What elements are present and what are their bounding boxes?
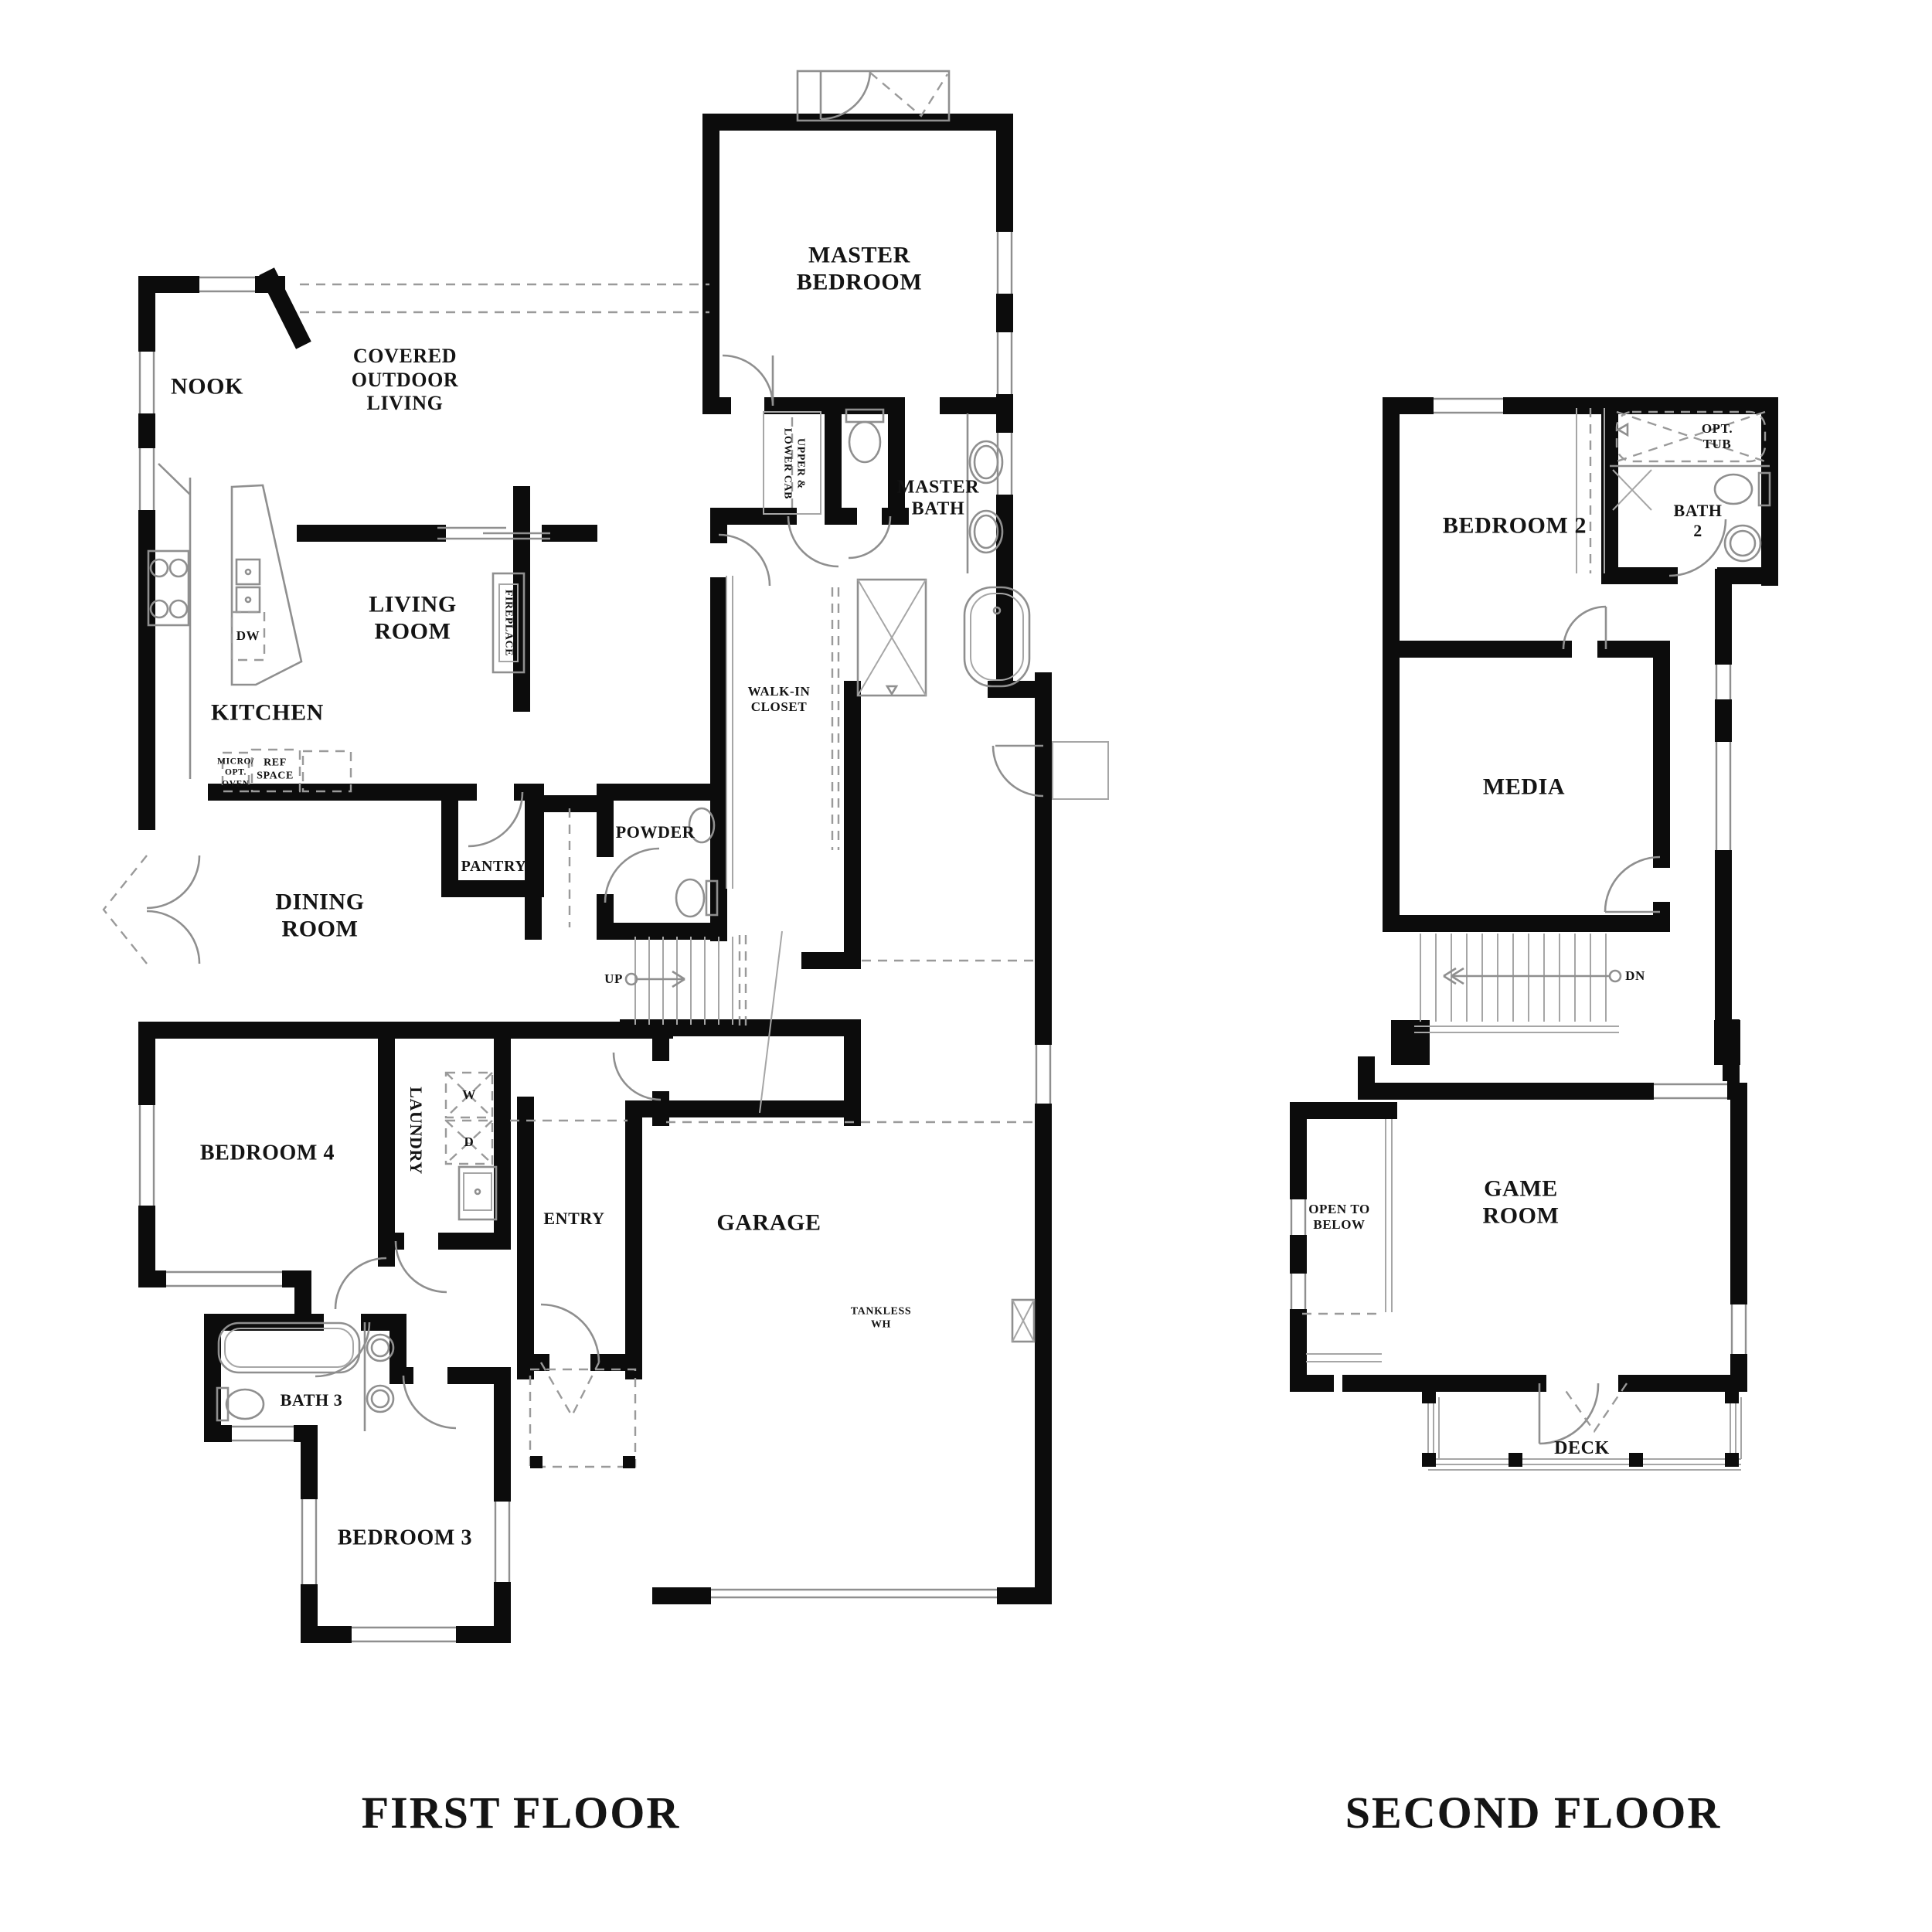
- porch-outline: [530, 1369, 635, 1467]
- label-covered-outdoor-living: COVERED OUTDOOR LIVING: [352, 345, 459, 416]
- label-garage: GARAGE: [716, 1209, 821, 1236]
- label-dining-room: DINING ROOM: [275, 889, 364, 944]
- label-living-room: LIVING ROOM: [369, 591, 457, 646]
- label-master-bath: MASTER BATH: [897, 477, 979, 521]
- bath2-toilet-icon: [1715, 474, 1752, 504]
- stairs-down-icon: [1414, 934, 1621, 1032]
- shower-icon: [1613, 470, 1651, 510]
- label-game-room: GAME ROOM: [1482, 1175, 1559, 1230]
- kitchen-sink-icon: [236, 560, 260, 584]
- label-fireplace: FIREPLACE: [502, 590, 515, 656]
- label-dw: DW: [236, 628, 260, 644]
- label-ref-space: REF SPACE: [257, 757, 294, 782]
- label-deck: DECK: [1554, 1437, 1610, 1459]
- label-dn: DN: [1625, 968, 1645, 984]
- railing-icon: [1386, 1119, 1392, 1312]
- label-washer: W: [462, 1087, 476, 1103]
- second-floor-title: SECOND FLOOR: [1345, 1787, 1721, 1839]
- label-entry: ENTRY: [543, 1209, 604, 1229]
- label-media: MEDIA: [1483, 773, 1565, 800]
- label-tankless-wh: TANKLESS WH: [851, 1305, 911, 1331]
- label-micro-opt-oven: MICRO/ OPT. OVEN: [217, 756, 254, 789]
- label-bath-2: BATH 2: [1673, 501, 1722, 541]
- bath3-toilet-icon: [226, 1389, 264, 1419]
- label-open-to-below: OPEN TO BELOW: [1308, 1202, 1370, 1233]
- label-up: UP: [604, 971, 623, 987]
- label-nook: NOOK: [171, 372, 243, 400]
- second-floor-walls: [1298, 406, 1770, 1383]
- first-floor-title: FIRST FLOOR: [362, 1787, 681, 1839]
- first-floor-plan: [104, 71, 1108, 1645]
- label-bedroom-4: BEDROOM 4: [200, 1140, 335, 1165]
- label-dryer: D: [464, 1134, 474, 1150]
- label-bath-3: BATH 3: [281, 1390, 343, 1410]
- label-master-bedroom: MASTER BEDROOM: [797, 242, 923, 297]
- label-walk-in-closet: WALK-IN CLOSET: [748, 684, 811, 715]
- first-floor-windows: [137, 232, 1053, 1645]
- label-bedroom-2: BEDROOM 2: [1443, 512, 1587, 539]
- floorplan-canvas: MASTER BEDROOM NOOK COVERED OUTDOOR LIVI…: [0, 0, 1932, 1932]
- label-kitchen: KITCHEN: [211, 699, 324, 726]
- second-floor-plan: [1288, 396, 1770, 1470]
- label-pantry: PANTRY: [461, 858, 527, 876]
- label-powder: POWDER: [616, 822, 696, 842]
- label-opt-tub: OPT. TUB: [1702, 421, 1733, 452]
- label-upper-lower-cab: UPPER & LOWER CAB: [781, 428, 806, 499]
- powder-toilet-icon: [676, 879, 704, 917]
- label-laundry: LAUNDRY: [406, 1087, 426, 1174]
- floorplan-drawing: [0, 0, 1932, 1932]
- label-bedroom-3: BEDROOM 3: [338, 1525, 472, 1550]
